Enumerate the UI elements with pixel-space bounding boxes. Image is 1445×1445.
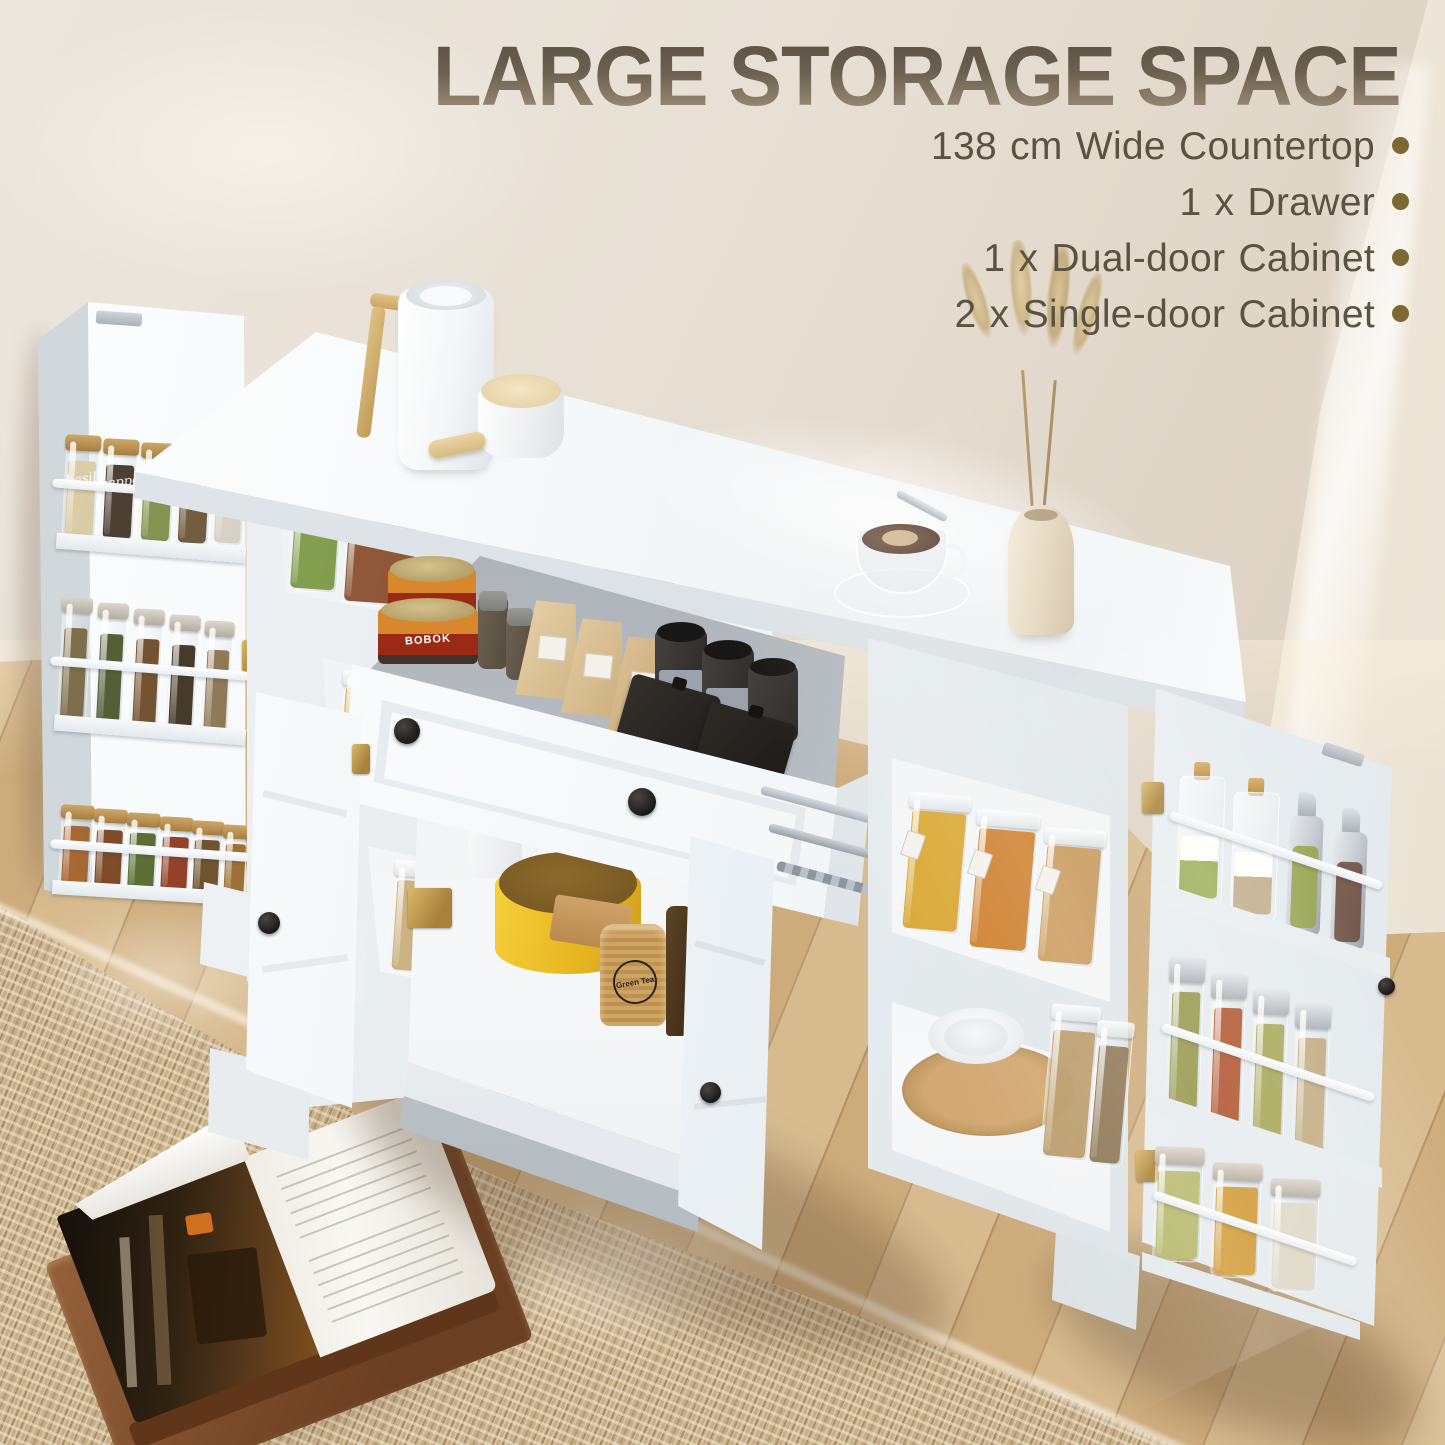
- drawer-knob: [628, 788, 656, 816]
- feature-label: 138 cm Wide Countertop: [931, 125, 1375, 168]
- can-brand-label: BOBOK: [378, 630, 479, 649]
- feature-label: 2 x Single-door Cabinet: [955, 293, 1375, 336]
- feature-list: 138 cm Wide Countertop 1 x Drawer 1 x Du…: [931, 126, 1409, 350]
- headline-title: LARGE STORAGE SPACE: [433, 34, 1401, 118]
- brass-hinge-icon: [352, 744, 370, 774]
- feature-label: 1 x Dual-door Cabinet: [983, 237, 1375, 280]
- bullet-dot-icon: [1392, 137, 1409, 154]
- spice-bottle-gray-cap: [478, 595, 508, 669]
- feature-item: 1 x Drawer: [931, 182, 1409, 223]
- feature-item: 2 x Single-door Cabinet: [931, 294, 1409, 335]
- food-can: BOBOK: [378, 598, 478, 664]
- flour-bowl: [478, 372, 564, 458]
- feature-item: 138 cm Wide Countertop: [931, 126, 1409, 167]
- bullet-dot-icon: [1392, 305, 1409, 322]
- bullet-dot-icon: [1392, 193, 1409, 210]
- feature-label: 1 x Drawer: [1179, 181, 1375, 224]
- bullet-dot-icon: [1392, 249, 1409, 266]
- brass-hinge-icon: [408, 888, 452, 928]
- tea-sack-stamp: Green Tea: [610, 957, 661, 1008]
- product-marketing-image: basil pepper seeds Green Tea: [0, 0, 1445, 1445]
- door-knob: [700, 1082, 721, 1103]
- burlap-tea-sack: Green Tea: [600, 924, 666, 1026]
- drawer-knob: [394, 718, 420, 744]
- door-knob: [258, 912, 280, 934]
- feature-item: 1 x Dual-door Cabinet: [931, 238, 1409, 279]
